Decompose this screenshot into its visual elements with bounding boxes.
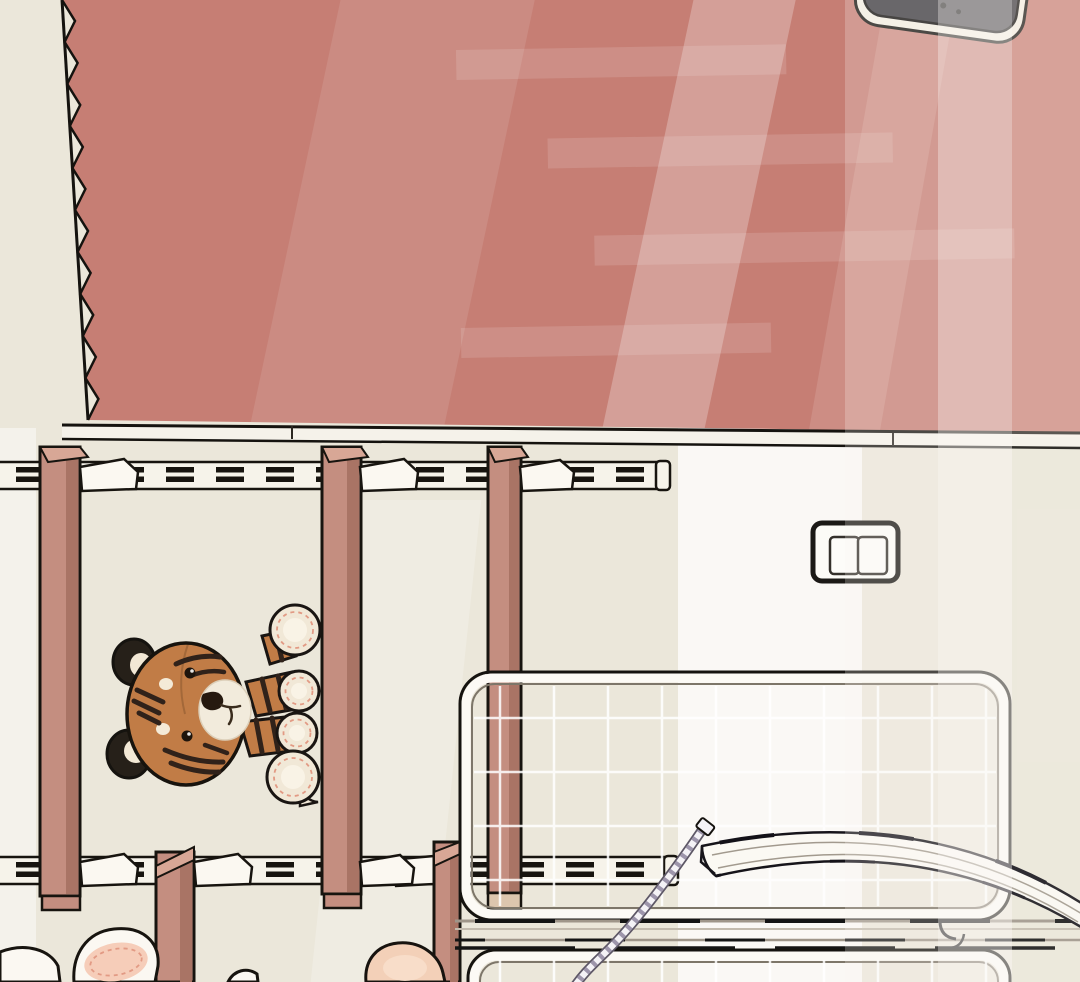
plush-foot-pad <box>74 929 158 982</box>
post-cap <box>324 894 361 908</box>
rail-end-cap <box>656 461 670 490</box>
tiger-plush <box>107 605 320 806</box>
crib-panel-lower <box>468 950 1010 982</box>
switch-rocker-left <box>830 537 859 574</box>
plush-feet <box>0 929 445 982</box>
switch-rocker-right <box>858 537 887 574</box>
plush-ear-tip <box>228 970 258 982</box>
post-cap <box>42 896 80 910</box>
mesh-grid <box>500 960 986 982</box>
tiger-muzzle <box>199 680 251 740</box>
scene-drawing <box>0 0 1080 982</box>
mesh-crib <box>455 672 1080 982</box>
comic-panel <box>0 0 1080 982</box>
post-2 <box>322 447 368 908</box>
plush-foot-partial <box>0 948 60 982</box>
bed-blanket <box>62 0 1080 495</box>
post-cap <box>488 893 521 909</box>
post-4 <box>156 847 194 982</box>
crib-rail-band <box>455 921 1080 948</box>
light-switch <box>813 523 898 581</box>
post-1 <box>40 447 88 910</box>
